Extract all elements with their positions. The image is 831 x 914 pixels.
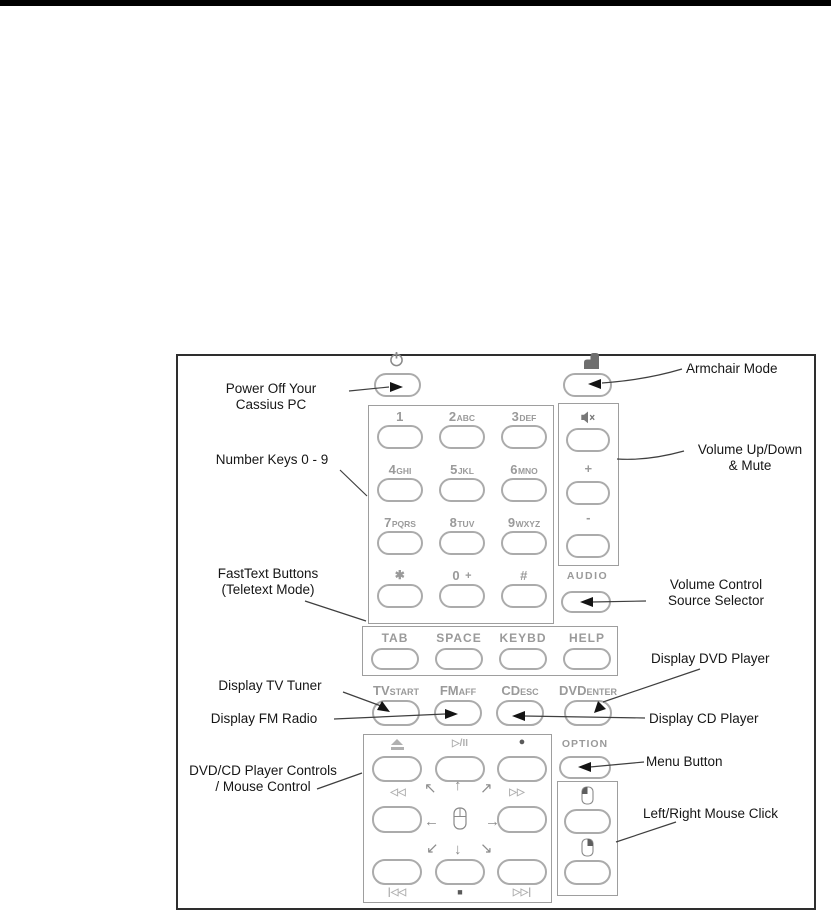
left-click-mouse-icon [581,786,594,805]
mute-button [566,428,610,452]
fasttext-annotation: FastText Buttons(Teletext Mode) [192,566,344,598]
tv-start-key: TVSTART [362,683,430,726]
play-pause-label: ▷/II [435,738,485,749]
page-top-rule [0,0,831,6]
function-key-panel: TAB SPACE KEYBD HELP [362,626,618,676]
key-0-button [439,584,485,608]
previous-track-button [372,859,422,885]
key-8: 8TUV [439,514,485,567]
key-6: 6MNO [501,461,547,514]
display-fm-annotation: Display FM Radio [192,711,336,727]
record-button [497,756,547,782]
key-star: ✱ [377,567,423,620]
mouse-click-panel [557,781,618,896]
cd-esc-button [496,700,544,726]
eject-button [372,756,422,782]
stop-button [435,859,485,885]
arrow-left: ← [424,813,439,830]
armchair-icon [581,349,602,370]
tv-start-button [372,700,420,726]
cd-esc-key: CDESC [486,683,554,726]
right-click-mouse-icon [581,838,594,857]
next-track-button [497,859,547,885]
power-off-annotation: Power Off YourCassius PC [193,381,349,413]
volume-up-label: + [559,461,618,476]
display-dvd-annotation: Display DVD Player [651,651,801,667]
option-button [559,756,611,779]
volume-down-label: - [559,510,618,525]
fm-aff-key: FMAFF [424,683,492,726]
option-label: OPTION [556,738,614,750]
key-1: 1 [377,408,423,461]
space-button [435,648,483,670]
fast-forward-label: ▷▷ [499,787,535,798]
arrow-down: ↓ [454,841,462,858]
space-key: SPACE [435,631,483,670]
volume-panel: + - [558,403,619,566]
key-7: 7PQRS [377,514,423,567]
key-5-button [439,478,485,502]
fm-aff-button [434,700,482,726]
help-key: HELP [563,631,611,670]
key-9: 9WXYZ [501,514,547,567]
rewind-button [372,806,422,833]
key-0: 0+ [439,567,485,620]
mouse-click-annotation: Left/Right Mouse Click [643,806,821,822]
key-2-button [439,425,485,449]
volume-annotation: Volume Up/Down& Mute [682,442,818,474]
right-mouse-click-button [564,860,611,885]
key-9-button [501,531,547,555]
tab-button [371,648,419,670]
dvd-cd-control-panel: ▷/II ● ↖ ↑ ↗ ◁◁ ▷▷ ← → ↙ ↓ ↘ |◁◁ ■ ▷▷| [363,734,552,903]
help-button [563,648,611,670]
power-button [374,373,421,397]
arrow-up-left: ↖ [424,779,437,797]
key-hash: # [501,567,547,620]
dvd-enter-button [564,700,612,726]
dvd-cd-controls-annotation: DVD/CD Player Controls/ Mouse Control [168,763,358,795]
key-2: 2ABC [439,408,485,461]
armchair-annotation: Armchair Mode [686,361,816,377]
eject-icon [390,739,404,750]
volume-source-annotation: Volume ControlSource Selector [646,577,786,609]
key-5: 5JKL [439,461,485,514]
number-keypad-panel: 1 2ABC 3DEF 4GHI 5JKL 6MNO 7PQRS 8TUV 9W… [368,405,554,624]
menu-annotation: Menu Button [646,754,756,770]
display-tv-annotation: Display TV Tuner [196,678,344,694]
mute-speaker-icon [580,410,596,425]
manual-page: 1 2ABC 3DEF 4GHI 5JKL 6MNO 7PQRS 8TUV 9W… [0,0,831,914]
next-track-label: ▷▷| [502,887,542,898]
power-icon [388,351,405,367]
key-3: 3DEF [501,408,547,461]
record-icon: ● [497,736,547,748]
rewind-label: ◁◁ [380,787,416,798]
arrow-down-left: ↙ [426,839,439,857]
armchair-mode-button [563,373,612,397]
key-6-button [501,478,547,502]
key-star-button [377,584,423,608]
display-cd-annotation: Display CD Player [649,711,795,727]
mouse-icon [453,807,467,830]
stop-icon: ■ [440,887,480,897]
key-8-button [439,531,485,555]
left-mouse-click-button [564,809,611,834]
audio-button [561,591,611,613]
audio-label: AUDIO [558,570,617,582]
arrow-right: → [485,813,500,830]
tab-key: TAB [371,631,419,670]
number-keys-annotation: Number Keys 0 - 9 [196,452,348,468]
key-1-button [377,425,423,449]
key-4: 4GHI [377,461,423,514]
arrow-up-right: ↗ [480,779,493,797]
arrow-up: ↑ [454,777,462,794]
key-4-button [377,478,423,502]
key-3-button [501,425,547,449]
dvd-enter-key: DVDENTER [550,683,626,726]
arrow-down-right: ↘ [480,839,493,857]
keybd-key: KEYBD [499,631,547,670]
fast-forward-button [497,806,547,833]
key-hash-button [501,584,547,608]
keybd-button [499,648,547,670]
volume-down-button [566,534,610,558]
volume-up-button [566,481,610,505]
previous-track-label: |◁◁ [377,887,417,898]
key-7-button [377,531,423,555]
